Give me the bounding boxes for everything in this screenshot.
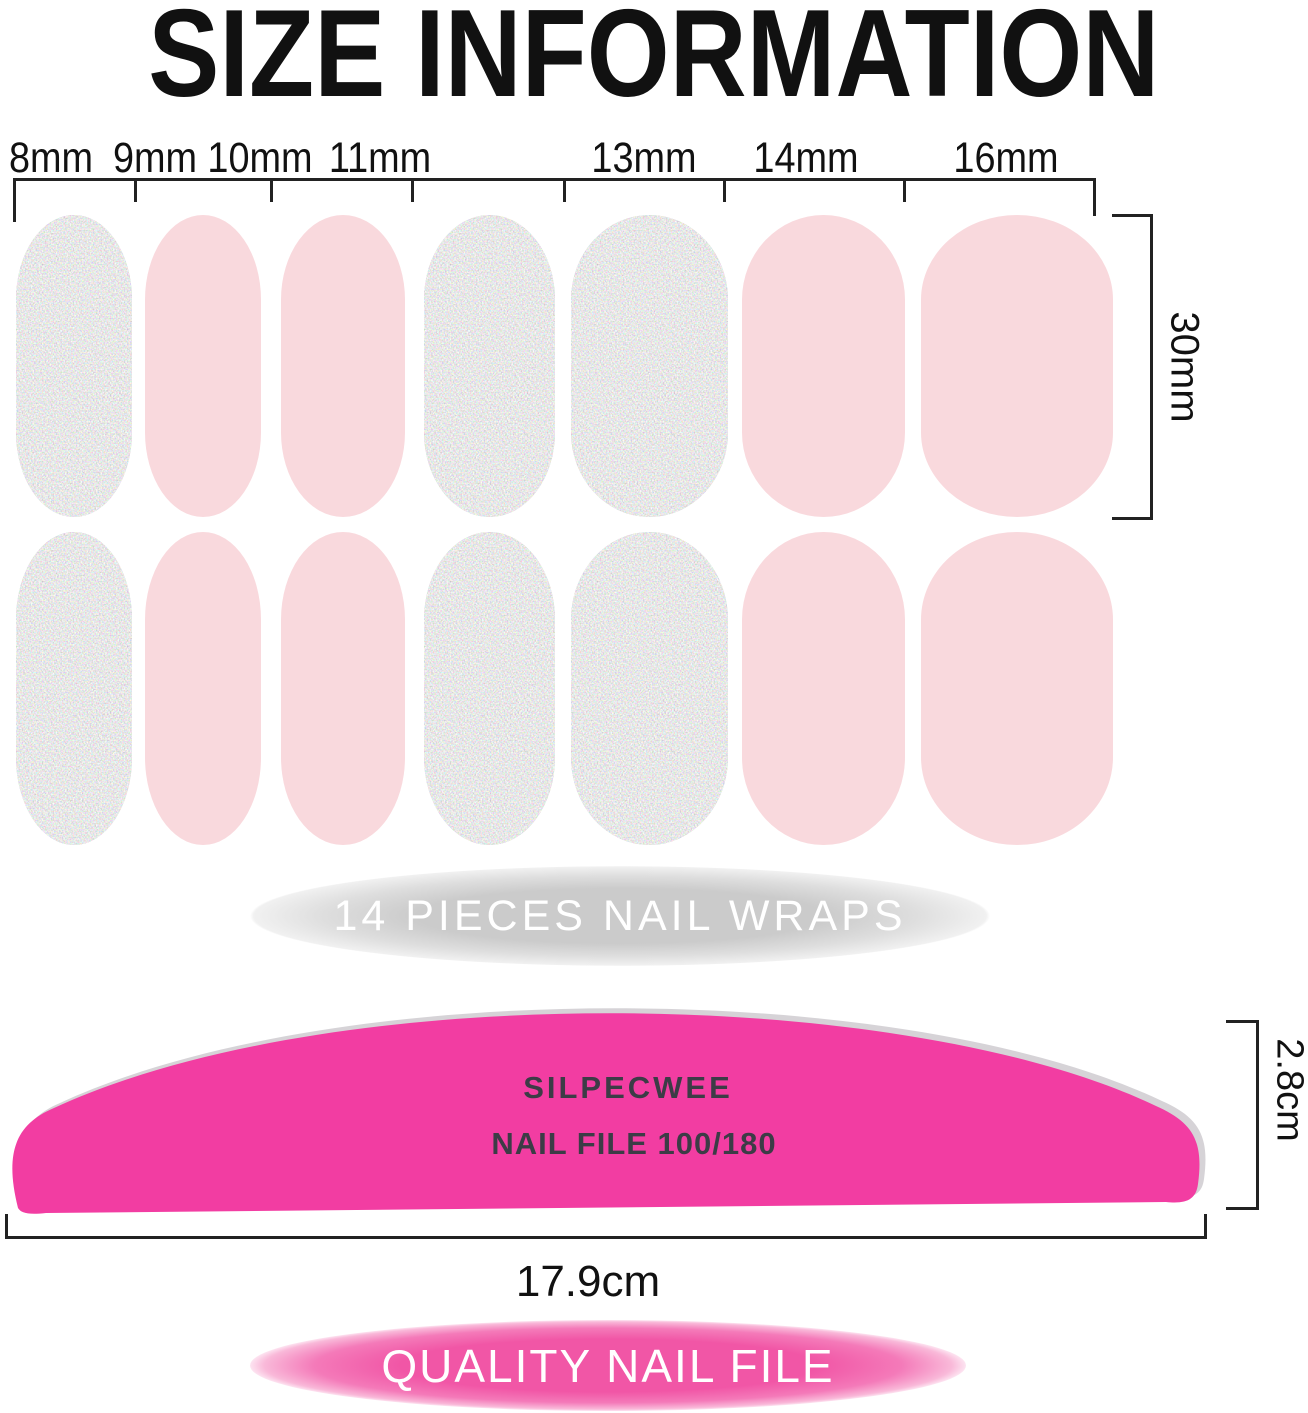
glitter-texture: [571, 532, 728, 845]
file-height-label: 2.8cm: [1268, 1038, 1308, 1141]
nail-wrap-silver-11mm: [424, 532, 555, 845]
glitter-texture: [16, 215, 132, 517]
nail-wrap-pink-10mm: [281, 532, 405, 845]
nail-file-caption-badge: QUALITY NAIL FILE: [250, 1320, 966, 1411]
nail-wrap-silver-13mm: [571, 532, 728, 845]
file-width-bracket-line: [5, 1236, 1207, 1239]
nail-file-graphic: [0, 1000, 1220, 1225]
nail-wraps-caption-badge: 14 PIECES NAIL WRAPS: [250, 866, 990, 966]
nail-wrap-pink-9mm: [145, 532, 261, 845]
width-ruler-tick: [411, 181, 414, 202]
nail-wrap-pink-16mm: [921, 532, 1113, 845]
file-width-bracket-left-tick: [5, 1214, 8, 1239]
size-label-10mm: 10mm: [200, 136, 319, 180]
page-title: SIZE INFORMATION: [0, 0, 1308, 116]
width-ruler-tick: [270, 181, 273, 202]
size-label-9mm: 9mm: [107, 136, 203, 180]
file-height-bracket-top-tick: [1226, 1020, 1259, 1023]
glitter-texture: [424, 532, 555, 845]
width-ruler-tick: [563, 181, 566, 202]
nail-wrap-pink-16mm: [921, 215, 1113, 517]
glitter-texture: [16, 532, 132, 845]
nail-wrap-silver-13mm: [571, 215, 728, 517]
nail-wrap-pink-9mm: [145, 215, 261, 517]
nail-wrap-pink-14mm: [742, 215, 905, 517]
nail-file-caption-text: QUALITY NAIL FILE: [381, 1339, 834, 1393]
nail-wrap-silver-8mm: [16, 215, 132, 517]
nail-height-label: 30mm: [1162, 311, 1207, 422]
nail-wraps-row-1: [0, 215, 1308, 517]
file-height-bracket-line: [1256, 1020, 1259, 1210]
file-width-bracket-right-tick: [1204, 1214, 1207, 1239]
width-ruler-right-end-tick: [1093, 178, 1096, 216]
nail-file-brand: SILPECWEE: [523, 1070, 733, 1106]
nail-wrap-silver-11mm: [424, 215, 555, 517]
nail-wraps-caption-text: 14 PIECES NAIL WRAPS: [333, 892, 906, 941]
nail-wraps-row-2: [0, 532, 1308, 845]
width-ruler-line: [13, 178, 1096, 181]
height-bracket-bottom-tick: [1112, 517, 1153, 520]
height-bracket-line: [1150, 214, 1153, 520]
nail-wrap-pink-10mm: [281, 215, 405, 517]
height-bracket-top-tick: [1112, 214, 1153, 217]
width-ruler-tick: [134, 181, 137, 202]
size-label-16mm: 16mm: [946, 136, 1065, 180]
size-label-8mm: 8mm: [3, 136, 99, 180]
nail-file-shape: [12, 1013, 1199, 1214]
size-information-infographic: SIZE INFORMATION 8mm 9mm 10mm 11mm 13mm …: [0, 0, 1308, 1413]
size-label-11mm: 11mm: [322, 136, 438, 180]
nail-file-model: NAIL FILE 100/180: [491, 1126, 776, 1162]
nail-wrap-pink-14mm: [742, 532, 905, 845]
page-title-text: SIZE INFORMATION: [148, 0, 1159, 116]
size-label-13mm: 13mm: [584, 136, 703, 180]
file-width-label: 17.9cm: [516, 1257, 660, 1307]
size-label-14mm: 14mm: [746, 136, 865, 180]
glitter-texture: [424, 215, 555, 517]
nail-wrap-silver-8mm: [16, 532, 132, 845]
width-ruler-tick: [903, 181, 906, 202]
glitter-texture: [571, 215, 728, 517]
width-ruler-tick: [723, 181, 726, 202]
file-height-bracket-bottom-tick: [1226, 1207, 1259, 1210]
